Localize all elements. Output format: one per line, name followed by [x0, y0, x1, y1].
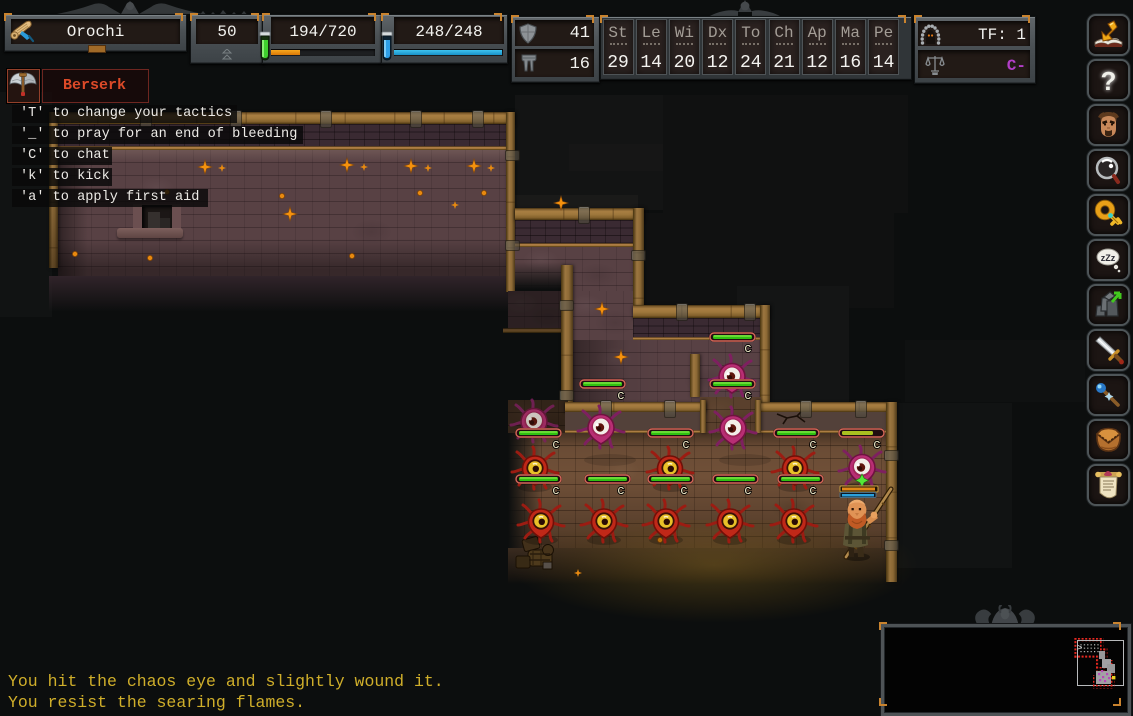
- svg-text:c: c: [617, 484, 625, 498]
- svg-text:c: c: [682, 438, 690, 452]
- svg-text:c: c: [809, 438, 817, 452]
- svg-text:c: c: [552, 484, 560, 498]
- svg-text:zZz: zZz: [1101, 253, 1116, 263]
- svg-text:c: c: [809, 484, 817, 498]
- svg-text:c: c: [552, 438, 560, 452]
- svg-text:c: c: [744, 484, 752, 498]
- svg-text:c: c: [744, 389, 752, 403]
- svg-text:c: c: [873, 438, 881, 452]
- svg-text:>: >: [1078, 644, 1083, 653]
- svg-text:c: c: [680, 484, 688, 498]
- svg-text:c: c: [744, 342, 752, 356]
- svg-text:c: c: [617, 389, 625, 403]
